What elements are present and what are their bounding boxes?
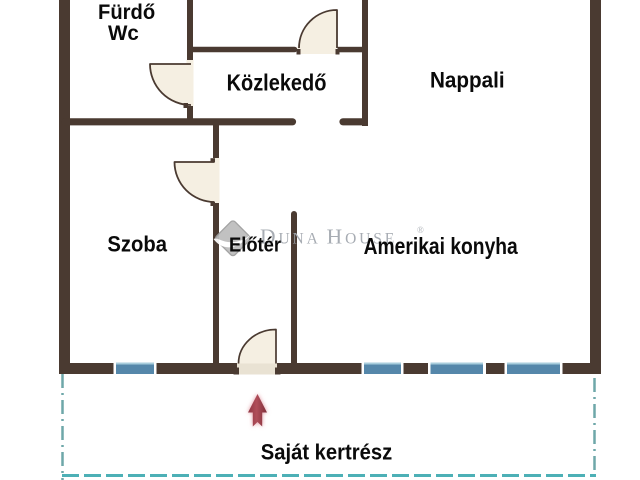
svg-text:Saját kertrész: Saját kertrész: [261, 441, 393, 465]
svg-text:Nappali: Nappali: [430, 68, 505, 93]
svg-text:Előtér: Előtér: [229, 235, 282, 257]
svg-text:Közlekedő: Közlekedő: [227, 69, 327, 96]
svg-text:Szoba: Szoba: [107, 233, 167, 257]
svg-text:Amerikai konyha: Amerikai konyha: [364, 233, 519, 259]
svg-text:Wc: Wc: [108, 22, 139, 45]
svg-text:Fürdő: Fürdő: [98, 0, 155, 23]
